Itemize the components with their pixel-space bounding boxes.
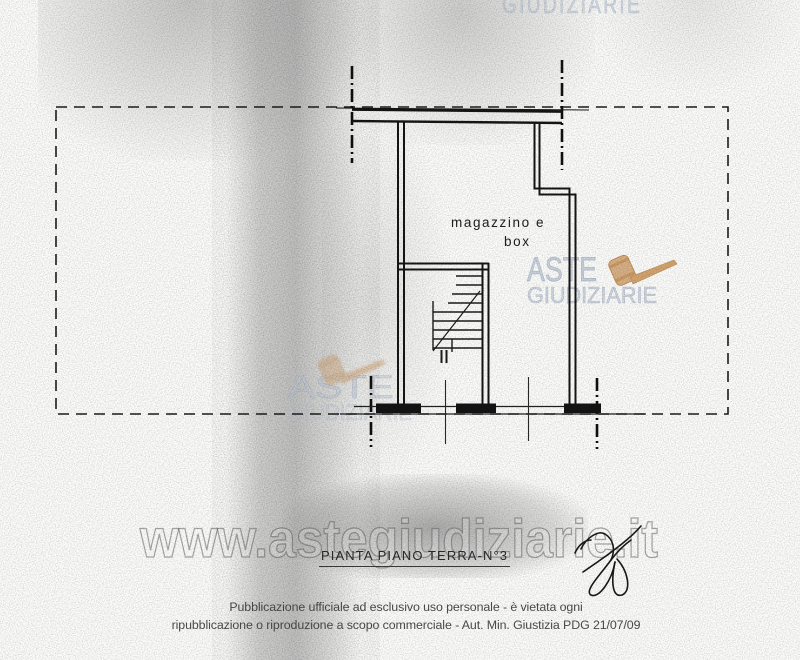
watermark-giudiziarie-text: GIUDIZIARIE <box>288 400 412 425</box>
scanned-floorplan-page: GIUDIZIARIE ASTE GIUDIZIARIE ASTE GIUDIZ… <box>0 0 800 660</box>
scan-shadow-middle <box>322 110 452 490</box>
top-wall <box>336 108 589 123</box>
room-label: magazzino e box <box>451 215 545 249</box>
watermark-aste-logo-right: ASTE GIUDIZIARIE <box>527 251 677 308</box>
room-label-line1: magazzino e <box>451 215 545 230</box>
plan-title: PIANTA PIANO TERRA-N°3 <box>319 548 510 567</box>
scan-shadow-top-middle <box>325 0 595 145</box>
box-room-walls <box>397 263 489 405</box>
footer-line-1: Pubblicazione ufficiale ad esclusivo uso… <box>6 599 800 617</box>
footer-line-2: ripubblicazione o riproduzione a scopo c… <box>6 617 800 635</box>
watermark-top-giudiziarie: GIUDIZIARIE <box>502 0 642 19</box>
scan-shadow-top-left <box>38 0 378 160</box>
wall-pier <box>456 404 496 414</box>
wall-pier <box>376 404 421 414</box>
watermark-aste-text: ASTE <box>527 251 597 289</box>
watermark-aste-text: ASTE <box>288 369 394 405</box>
door-reference-lines <box>446 377 529 444</box>
bottom-wall <box>340 404 646 415</box>
staircase <box>433 276 482 363</box>
scan-shadow-top-right <box>590 0 800 90</box>
footer-disclaimer: Pubblicazione ufficiale ad esclusivo uso… <box>6 599 800 634</box>
right-wall <box>535 122 576 406</box>
room-label-line2: box <box>504 234 531 249</box>
gavel-icon <box>317 354 385 387</box>
watermark-aste-logo-left: ASTE GIUDIZIARIE <box>288 354 412 425</box>
watermark-giudiziarie-text: GIUDIZIARIE <box>527 282 657 308</box>
gavel-icon <box>607 254 677 287</box>
left-wall <box>398 122 404 405</box>
lot-boundary-dashed <box>56 107 728 414</box>
section-markers <box>352 60 597 449</box>
wall-pier <box>564 404 601 414</box>
